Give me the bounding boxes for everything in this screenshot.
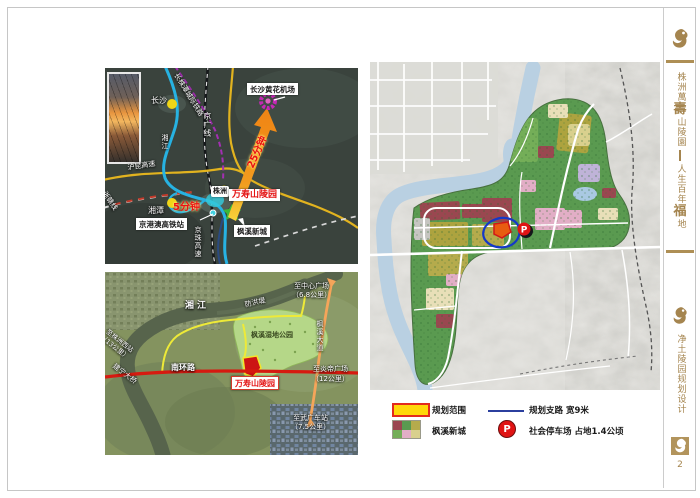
brand-title-post: 山陵園 (675, 117, 686, 147)
city-label-zhuzhou: 株洲 (211, 186, 229, 197)
legend-scope-swatch (392, 403, 430, 417)
footer-logo-badge (671, 437, 689, 455)
brand-logo-icon (671, 28, 689, 54)
cemetery-label: 万寿山陵园 (229, 189, 280, 201)
fengxi-newtown-label: 枫溪新城 (234, 225, 270, 237)
section-logo-icon (672, 306, 688, 330)
legend-fengxi-label: 枫溪新城 (432, 425, 466, 437)
legend-scope-label: 规划范围 (432, 404, 466, 416)
sidebar-divider-top (666, 60, 694, 63)
sidebar-divider-bottom (666, 250, 694, 253)
hsr-station-label: 京港澳高铁站 (136, 218, 187, 230)
brand-title-big-char: 壽 (673, 102, 686, 117)
cemetery-site-label: 万寿山陵园 (231, 376, 279, 390)
brand-vertical-title: 株洲萬 壽 山陵園 人生百年 福 地 (664, 72, 696, 229)
brand-title-pre: 株洲萬 (675, 72, 686, 102)
avenue-label-fengxi: 枫溪大道 (316, 320, 324, 352)
parking-marker-icon: P (521, 226, 528, 236)
legend: 规划范围 规划支路 宽9米 枫溪新城 P 社会停车场 占地1.4公顷 (385, 398, 647, 450)
expressway-label-jingzhu: 京珠高速 (194, 226, 202, 258)
legend-road-label: 规划支路 宽9米 (529, 404, 589, 416)
region-location-map: 长沙 湘潭 株洲 长株潭城际铁路 京广线 湘江 沪昆高速 浙赣线 京珠高速 25… (105, 68, 358, 264)
section-title-text: 净土陵园规划设计 (675, 334, 686, 414)
brand-tagline-post: 地 (675, 219, 686, 229)
legend-parking-label: 社会停车场 占地1.4公顷 (529, 425, 624, 437)
brand-tagline-big-char: 福 (673, 204, 686, 219)
river-label-xiangjiang-sat: 湘江 (185, 302, 209, 310)
airport-label: 长沙黄花机场 (247, 83, 298, 95)
ring-road-label: 南环路 (171, 364, 195, 372)
sidebar: 株洲萬 壽 山陵園 人生百年 福 地 净土陵园规划设计 2 (663, 8, 696, 488)
plan-map-graphic: P (370, 62, 660, 390)
rail-label-jingguang: 京广线 (203, 112, 211, 138)
travel-time-hsr: 5分钟 (173, 198, 200, 213)
brand-dash (679, 150, 681, 161)
distance-wuguang-station: 至武广车站（7.5公里） (291, 414, 330, 432)
section-vertical-title: 净土陵园规划设计 (664, 334, 696, 414)
river-label-xiangjiang: 湘江 (161, 134, 169, 150)
city-label-xiangtan: 湘潭 (148, 207, 164, 215)
legend-road-line (488, 410, 524, 412)
wetland-park-label: 枫溪湿地公园 (251, 330, 293, 340)
document-page: 长沙 湘潭 株洲 长株潭城际铁路 京广线 湘江 沪昆高速 浙赣线 京珠高速 25… (0, 0, 700, 498)
city-label-changsha: 长沙 (151, 97, 167, 105)
distance-center-square: 至中心广场（6.8公里） (292, 282, 331, 300)
satellite-location-map: 湘江 防洪堤 枫溪湿地公园 南环路 万寿山陵园 枫溪大道 至株洲西站（13公里）… (105, 272, 358, 455)
master-plan-map: P (370, 62, 660, 390)
brand-tagline-pre: 人生百年 (675, 164, 686, 204)
distance-yandi-square: 至炎帝广场（12公里） (312, 364, 349, 384)
legend-fengxi-thumbnail (392, 420, 421, 439)
page-number: 2 (664, 460, 696, 470)
sunset-photo-inset (107, 72, 141, 164)
legend-parking-icon: P (498, 420, 516, 438)
